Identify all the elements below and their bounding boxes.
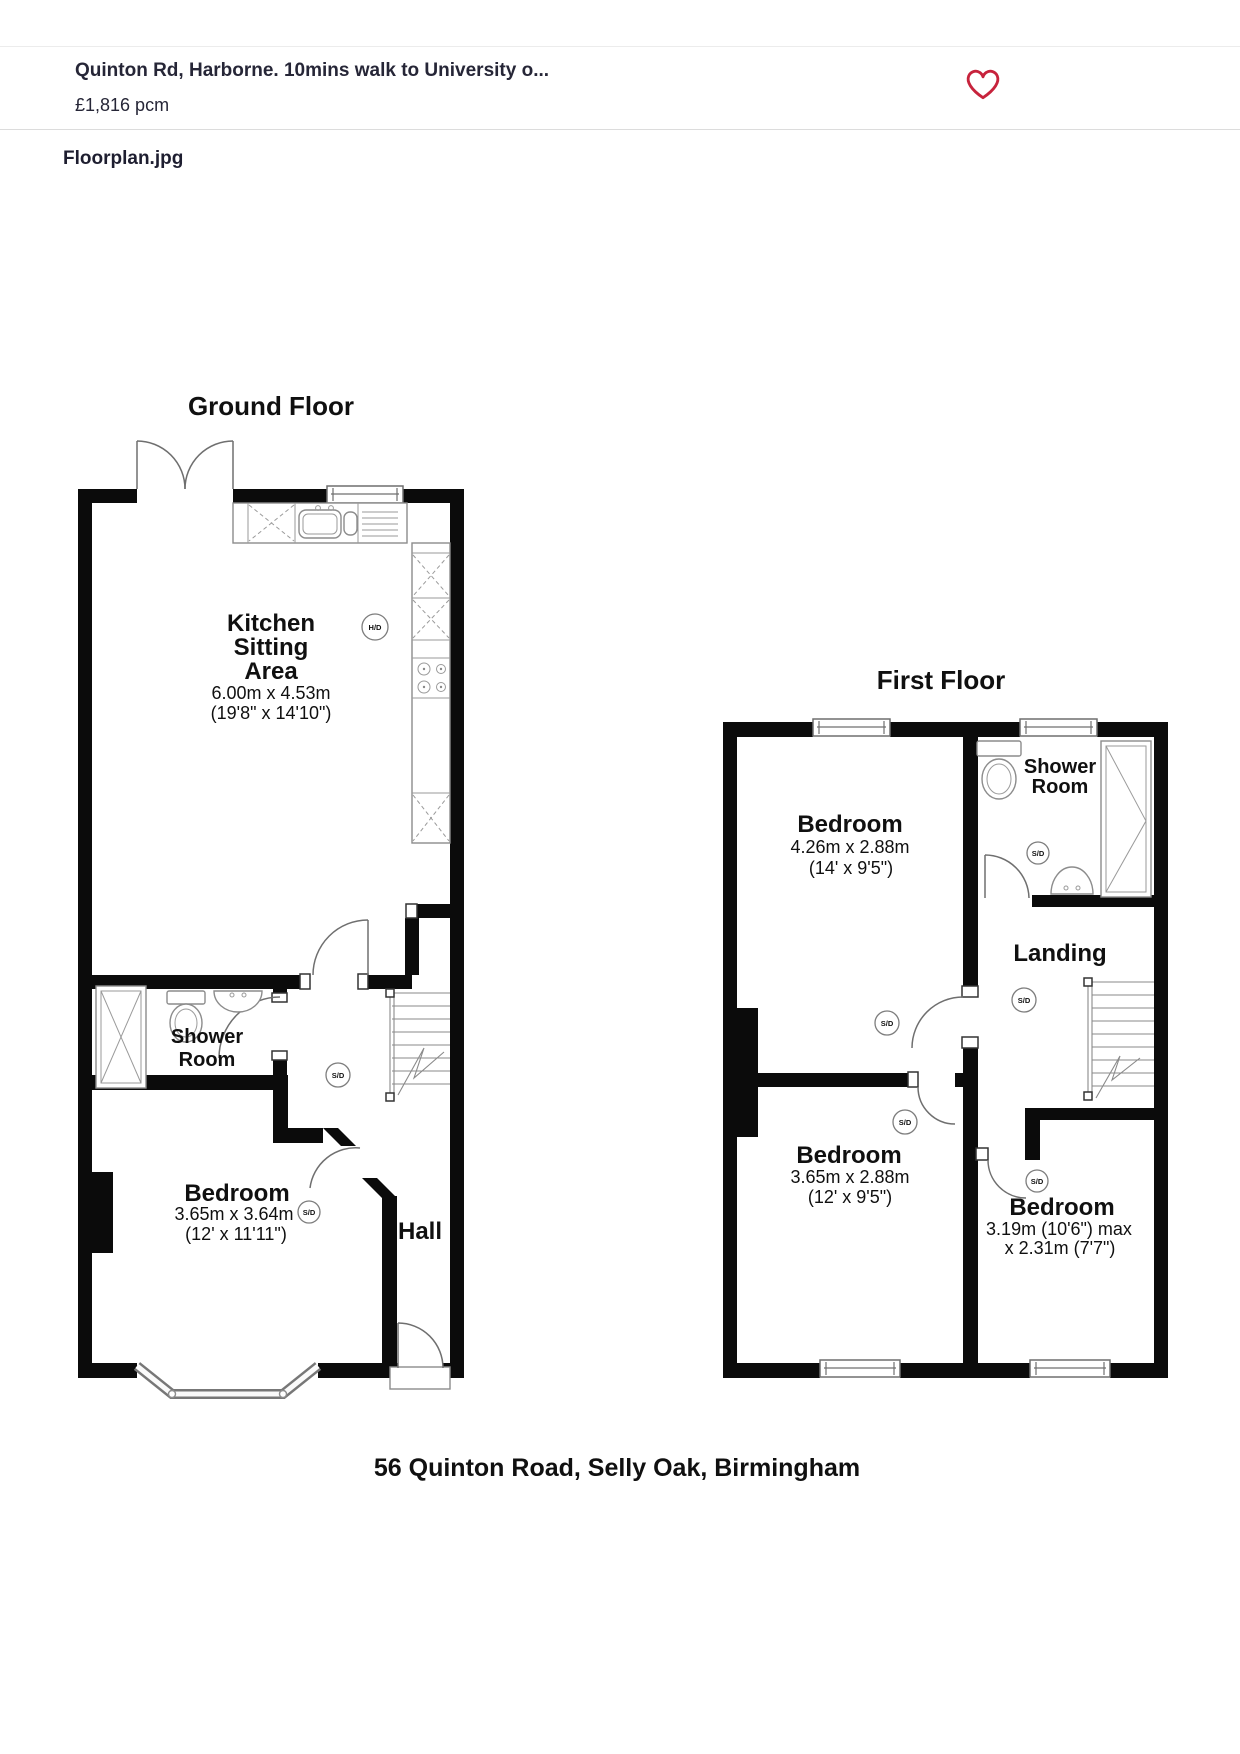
room-label-kitchen: Kitchen [227, 610, 315, 637]
room-label-bedroom: Bedroom [184, 1180, 289, 1207]
room-dims: (12' x 9'5") [808, 1187, 892, 1207]
room-label-kitchen: Area [244, 658, 298, 685]
room-dims: 4.26m x 2.88m [790, 837, 909, 857]
room-dims: 6.00m x 4.53m [211, 683, 330, 703]
svg-text:S/D: S/D [303, 1208, 316, 1217]
room-dims: (19'8" x 14'10") [211, 703, 332, 723]
shower-enclosure [1101, 741, 1151, 897]
floorplan-image[interactable]: Ground Floor [0, 0, 1240, 1754]
ground-floor-title: Ground Floor [188, 391, 354, 421]
smoke-detector-marker: S/D [1027, 842, 1049, 864]
smoke-detector-marker: S/D [893, 1110, 917, 1134]
svg-text:S/D: S/D [332, 1071, 345, 1080]
room-label-kitchen: Sitting [234, 634, 309, 661]
room-label-shower-room: Shower [1024, 756, 1096, 778]
door-post [272, 1051, 287, 1060]
svg-text:S/D: S/D [1032, 849, 1045, 858]
room-dims: (12' x 11'11") [185, 1224, 287, 1244]
door-post [962, 1037, 978, 1048]
svg-text:H/D: H/D [369, 623, 383, 632]
bedroom-door [310, 1148, 360, 1188]
stairs [1084, 978, 1154, 1100]
smoke-detector-marker: S/D [875, 1011, 899, 1035]
svg-text:S/D: S/D [881, 1019, 894, 1028]
svg-text:S/D: S/D [1031, 1177, 1044, 1186]
smoke-detector-marker: S/D [1012, 988, 1036, 1012]
room-dims: 3.65m x 2.88m [790, 1167, 909, 1187]
door-post [300, 974, 310, 989]
door-post [406, 904, 417, 918]
room-dims: 3.65m x 3.64m [174, 1204, 293, 1224]
room-label-hall: Hall [398, 1218, 442, 1245]
heat-detector-marker: H/D [362, 614, 388, 640]
room-label-bedroom: Bedroom [796, 1142, 901, 1169]
kitchen-window [327, 486, 403, 503]
toilet [977, 741, 1021, 799]
door-post [976, 1148, 988, 1160]
room-dims: (14' x 9'5") [809, 858, 893, 878]
smoke-detector-marker: S/D [1026, 1170, 1048, 1192]
room-label-shower-room: Room [1032, 776, 1089, 798]
shower-enclosure [96, 986, 146, 1088]
shower-room-door [985, 855, 1029, 898]
room-label-landing: Landing [1013, 940, 1106, 967]
floorplan-caption: 56 Quinton Road, Selly Oak, Birmingham [374, 1454, 860, 1482]
bedroom-front-door [912, 997, 963, 1048]
basin [1051, 867, 1093, 894]
floorplan-page: Quinton Rd, Harborne. 10mins walk to Uni… [0, 0, 1240, 1754]
bedroom-middle-door [918, 1087, 955, 1124]
window [1020, 719, 1097, 736]
room-label-shower-room: Room [179, 1049, 236, 1071]
smoke-detector-marker: S/D [326, 1063, 350, 1087]
first-floor-plan: First Floor [723, 665, 1168, 1378]
room-dims: 3.19m (10'6") max [986, 1219, 1132, 1239]
room-label-shower-room: Shower [171, 1026, 243, 1048]
room-label-bedroom: Bedroom [1009, 1194, 1114, 1221]
basin [214, 991, 262, 1012]
ground-floor-plan: Ground Floor [78, 391, 464, 1398]
door-post [908, 1072, 918, 1087]
first-floor-title: First Floor [877, 665, 1006, 695]
window [1030, 1360, 1110, 1377]
front-door [390, 1323, 450, 1389]
bay-window [137, 1366, 318, 1398]
window [820, 1360, 900, 1377]
room-dims: x 2.31m (7'7") [1005, 1238, 1116, 1258]
bedroom-rear-door [988, 1160, 1026, 1198]
svg-text:S/D: S/D [899, 1118, 912, 1127]
window [813, 719, 890, 736]
room-label-bedroom: Bedroom [797, 811, 902, 838]
door-post [962, 986, 978, 997]
stairs [386, 989, 450, 1101]
french-doors [137, 441, 233, 489]
svg-text:S/D: S/D [1018, 996, 1031, 1005]
door-post [358, 974, 368, 989]
kitchen-door [313, 920, 368, 975]
smoke-detector-marker: S/D [298, 1201, 320, 1223]
